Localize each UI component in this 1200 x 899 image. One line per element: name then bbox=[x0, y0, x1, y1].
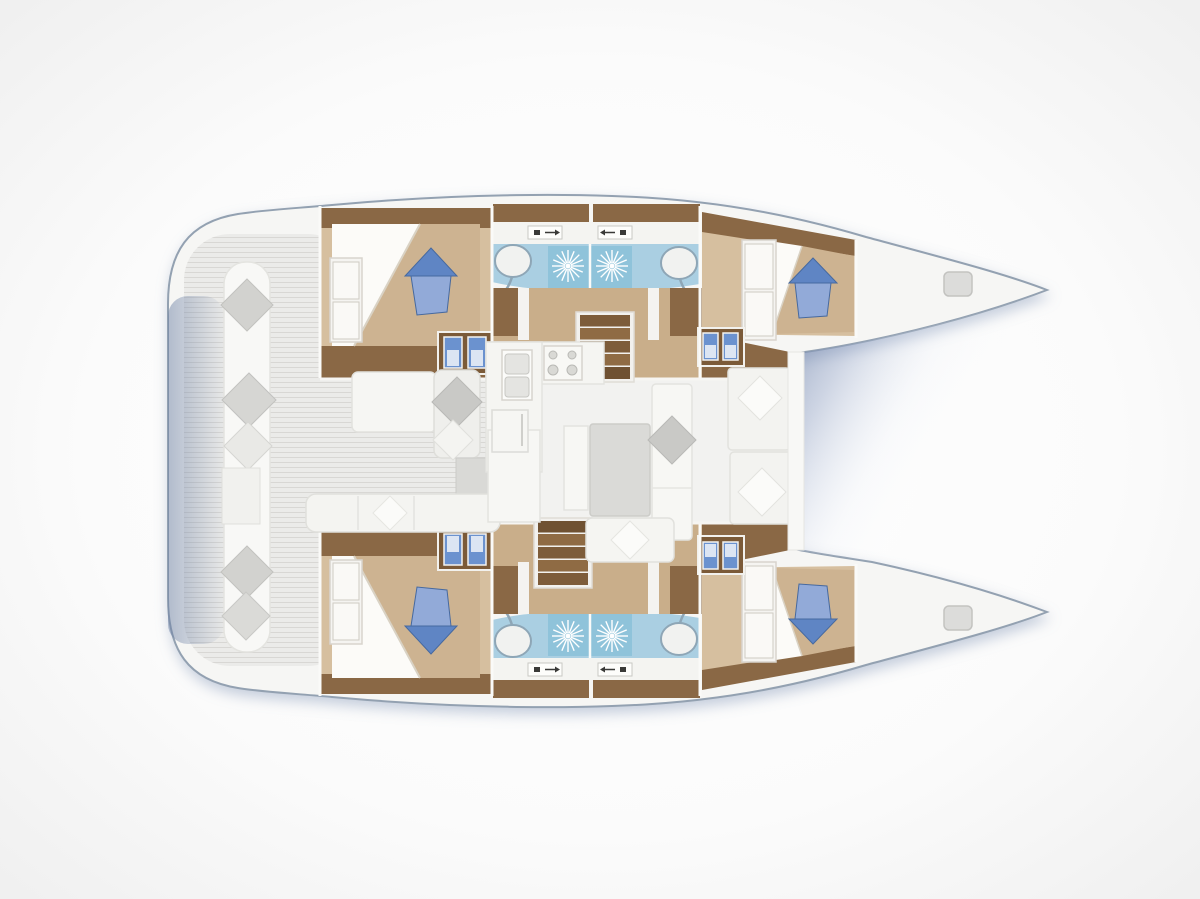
toilet-aft bbox=[495, 625, 531, 657]
shower-spray-fore bbox=[596, 250, 628, 282]
aft-berth-pillow-body bbox=[411, 587, 451, 626]
fore-berth-pillow-body bbox=[795, 584, 831, 619]
aft-wardrobe-door-1 bbox=[333, 603, 359, 640]
shower-spray-aft bbox=[552, 620, 584, 652]
stairs-stbd-step-1 bbox=[538, 521, 588, 533]
head-top-band-aft bbox=[493, 680, 589, 698]
aft-locker-curtain-1 bbox=[447, 536, 459, 552]
aft-wardrobe-door-2 bbox=[333, 563, 359, 600]
salon-seat-left bbox=[564, 426, 588, 510]
bench-side-table bbox=[222, 468, 260, 524]
shower-spray-fore bbox=[596, 620, 628, 652]
fore-locker-curtain-2 bbox=[725, 345, 736, 358]
fore-wardrobe-door-1 bbox=[745, 244, 773, 289]
toilet-fore bbox=[661, 247, 697, 279]
corridor-cabinet-aft bbox=[492, 288, 520, 336]
corridor-door-aft bbox=[518, 288, 529, 340]
burner-2 bbox=[568, 351, 576, 359]
stairs-port-step-2 bbox=[580, 328, 630, 340]
burner-4 bbox=[567, 365, 577, 375]
corridor-door-fore bbox=[648, 288, 659, 340]
aft-locker-curtain-1 bbox=[447, 350, 459, 366]
corridor-door-aft bbox=[518, 562, 529, 614]
toilet-aft bbox=[495, 245, 531, 277]
floor-plan-page bbox=[0, 0, 1200, 899]
fore-wardrobe-door-2 bbox=[745, 566, 773, 610]
head-counter bbox=[492, 658, 702, 680]
sink-bowl-2 bbox=[505, 377, 529, 397]
spray-core bbox=[566, 634, 571, 639]
bow-deck-hatch bbox=[944, 606, 972, 630]
stairs-stbd-step-3 bbox=[538, 547, 588, 559]
burner-1 bbox=[549, 351, 557, 359]
head-top-band-fore bbox=[593, 680, 700, 698]
stairs-stbd-step-4 bbox=[538, 560, 588, 572]
spray-core bbox=[566, 264, 571, 269]
mixer-fore-knob bbox=[620, 230, 626, 235]
mixer-aft-knob bbox=[534, 230, 540, 235]
stairs-stbd-step-5 bbox=[538, 573, 588, 585]
aft-berth-pillow-body bbox=[411, 276, 451, 315]
transom-shade bbox=[168, 296, 224, 644]
bow-deck-hatch bbox=[944, 272, 972, 296]
spray-core bbox=[610, 264, 615, 269]
head-top-band-fore bbox=[593, 204, 700, 222]
shower-spray-aft bbox=[552, 250, 584, 282]
aft-locker-curtain-2 bbox=[471, 536, 483, 552]
mixer-aft-knob bbox=[534, 667, 540, 672]
aft-wardrobe-door-2 bbox=[333, 302, 359, 339]
fore-wardrobe-door-1 bbox=[745, 613, 773, 658]
burner-3 bbox=[548, 365, 558, 375]
stairs-port-step-1 bbox=[580, 315, 630, 327]
corridor-cabinet-aft bbox=[492, 566, 520, 614]
stairs-stbd-step-2 bbox=[538, 534, 588, 546]
toilet-fore bbox=[661, 623, 697, 655]
mixer-fore-knob bbox=[620, 667, 626, 672]
corridor-door-fore bbox=[648, 562, 659, 614]
stove bbox=[544, 346, 582, 380]
fore-locker-curtain-2 bbox=[725, 544, 736, 557]
aft-locker-curtain-2 bbox=[471, 350, 483, 366]
sink-bowl-1 bbox=[505, 354, 529, 374]
dining-table bbox=[590, 424, 650, 516]
fore-locker-curtain-1 bbox=[705, 544, 716, 557]
floor-plan bbox=[0, 0, 1200, 899]
spray-core bbox=[610, 634, 615, 639]
fore-locker-curtain-1 bbox=[705, 345, 716, 358]
aft-wardrobe-door-1 bbox=[333, 262, 359, 299]
head-counter bbox=[492, 222, 702, 244]
fore-berth-pillow-body bbox=[795, 283, 831, 318]
foredeck-beam bbox=[788, 352, 804, 550]
cockpit-table bbox=[352, 372, 436, 432]
fore-wardrobe-door-2 bbox=[745, 292, 773, 336]
head-top-band-aft bbox=[493, 204, 589, 222]
